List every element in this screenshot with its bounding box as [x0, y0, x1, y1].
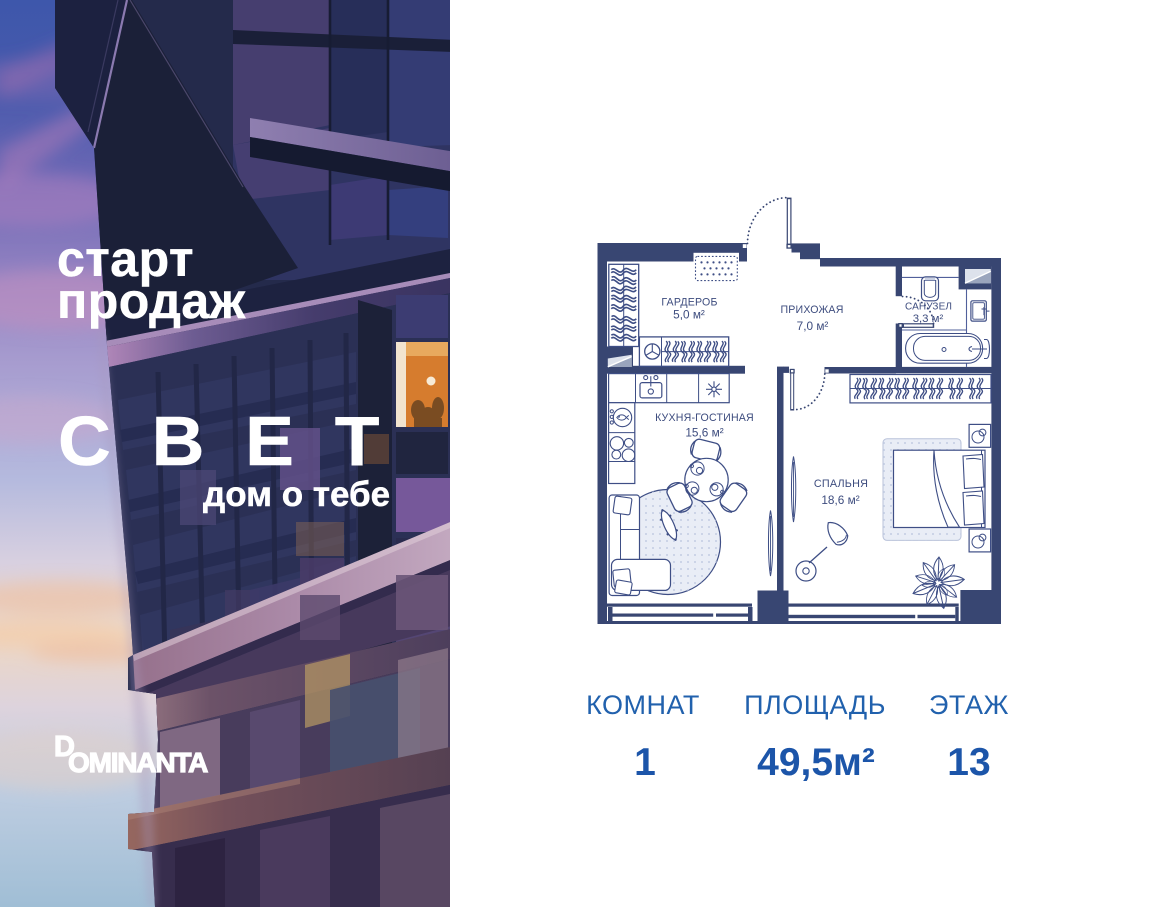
svg-text:СПАЛЬНЯ: СПАЛЬНЯ	[814, 478, 868, 490]
svg-text:7,0 м²: 7,0 м²	[797, 319, 829, 333]
svg-text:3,3 м²: 3,3 м²	[913, 313, 944, 325]
svg-text:18,6 м²: 18,6 м²	[821, 493, 859, 507]
svg-text:КУХНЯ-ГОСТИНАЯ: КУХНЯ-ГОСТИНАЯ	[655, 412, 754, 424]
svg-text:5,0 м²: 5,0 м²	[673, 308, 705, 322]
svg-text:САНУЗЕЛ: САНУЗЕЛ	[905, 302, 952, 313]
svg-text:15,6 м²: 15,6 м²	[685, 426, 723, 440]
svg-text:ПРИХОЖАЯ: ПРИХОЖАЯ	[780, 304, 843, 316]
